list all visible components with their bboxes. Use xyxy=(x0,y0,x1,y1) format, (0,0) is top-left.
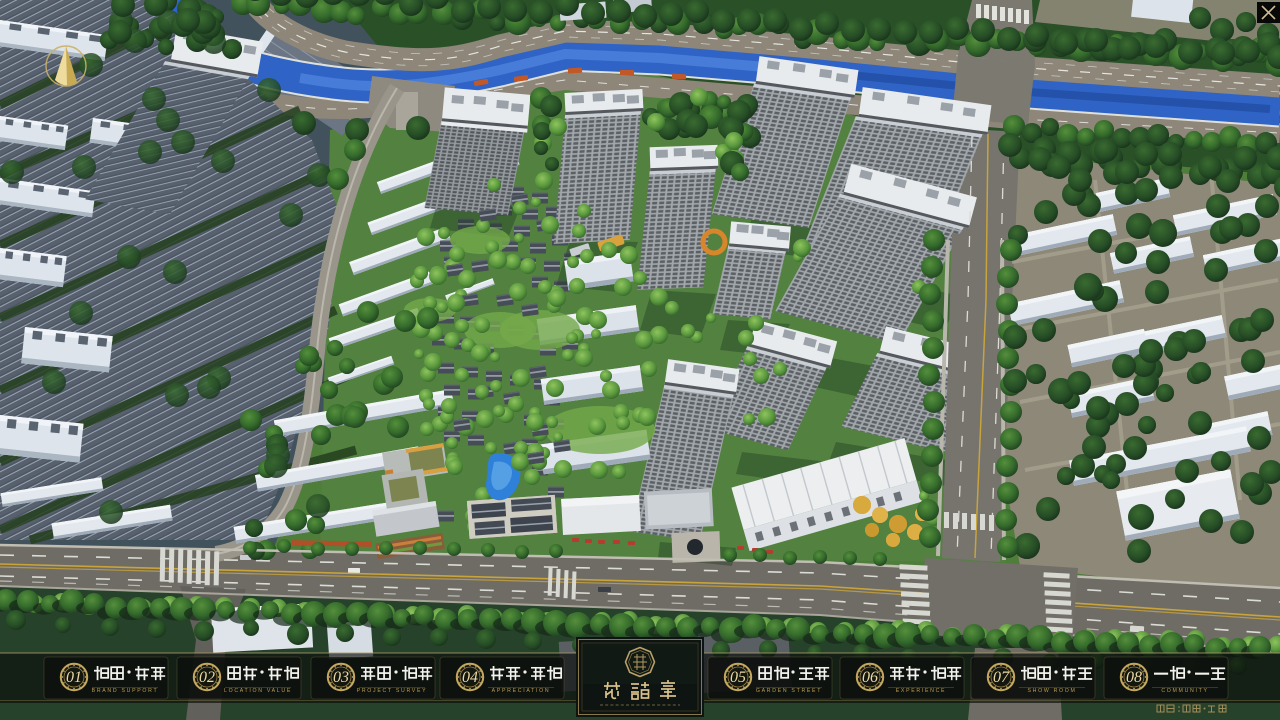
svg-text:02: 02 xyxy=(199,669,215,686)
svg-text:04: 04 xyxy=(462,669,478,686)
svg-text:N: N xyxy=(63,38,68,45)
svg-text:06: 06 xyxy=(862,669,878,686)
svg-text:APPRECIATION: APPRECIATION xyxy=(492,688,551,694)
svg-text:PROJECT SURVEY: PROJECT SURVEY xyxy=(357,688,428,694)
svg-text:05: 05 xyxy=(730,669,746,686)
svg-text:SHOW ROOM: SHOW ROOM xyxy=(1027,688,1076,694)
svg-text:GARDEN STREET: GARDEN STREET xyxy=(756,688,822,694)
svg-text:EXPERIENCE: EXPERIENCE xyxy=(896,688,946,694)
svg-text:LOCATION VALUE: LOCATION VALUE xyxy=(224,688,292,694)
svg-text:07: 07 xyxy=(993,669,1010,686)
svg-text:COMMUNITY: COMMUNITY xyxy=(1161,688,1208,694)
svg-text:08: 08 xyxy=(1126,669,1142,686)
svg-text:01: 01 xyxy=(66,669,82,686)
svg-text:BRAND SUPPORT: BRAND SUPPORT xyxy=(92,688,159,694)
svg-text:03: 03 xyxy=(333,669,349,686)
